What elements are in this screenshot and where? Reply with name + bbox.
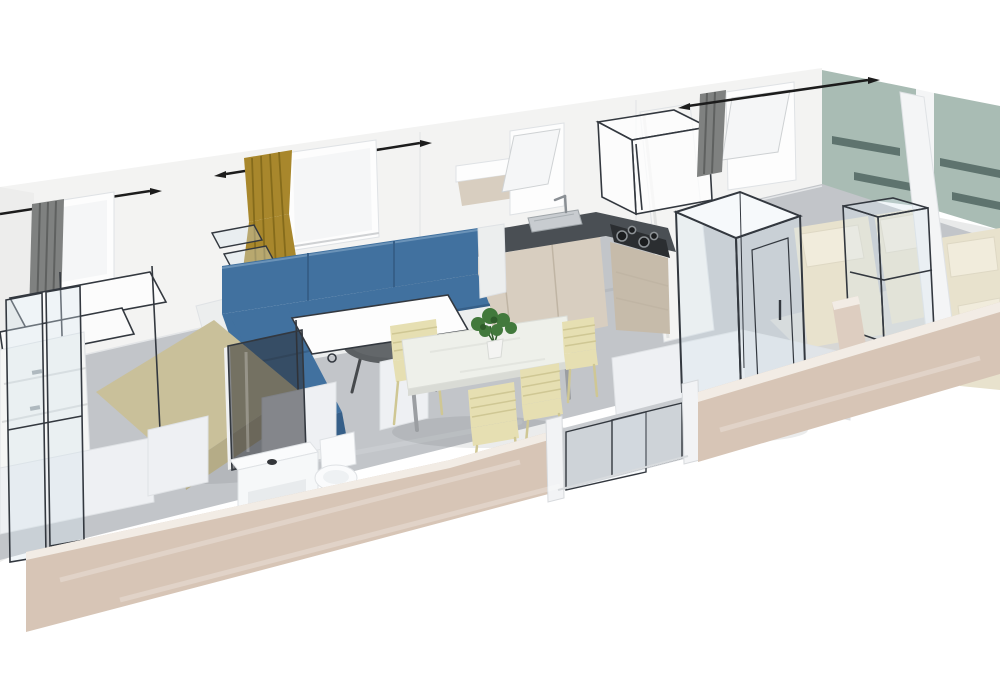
burner xyxy=(628,226,635,233)
plant-pot xyxy=(487,339,503,359)
floorplan-svg xyxy=(0,0,1000,684)
plant-foliage xyxy=(491,324,503,336)
burner xyxy=(639,237,649,247)
bed-pillow xyxy=(947,237,998,277)
faucet-stem xyxy=(565,196,566,212)
chair-back xyxy=(468,382,517,428)
plant-foliage-dark xyxy=(491,317,498,324)
living-window-glass xyxy=(293,148,372,243)
shower-glass-panel xyxy=(6,293,46,562)
vanity-sink-hole xyxy=(267,459,277,465)
plant-foliage-dark xyxy=(480,324,486,330)
burner xyxy=(617,231,627,241)
door-reflection xyxy=(246,352,248,452)
range-hood-wireframe xyxy=(598,110,712,214)
floorplan-render xyxy=(0,0,1000,684)
bathroom-partition xyxy=(148,416,208,496)
door-jamb xyxy=(682,380,700,464)
sofa-right-armrest xyxy=(478,224,506,298)
toilet-seat xyxy=(323,470,349,484)
plant-foliage xyxy=(505,322,517,334)
burner xyxy=(650,232,657,239)
